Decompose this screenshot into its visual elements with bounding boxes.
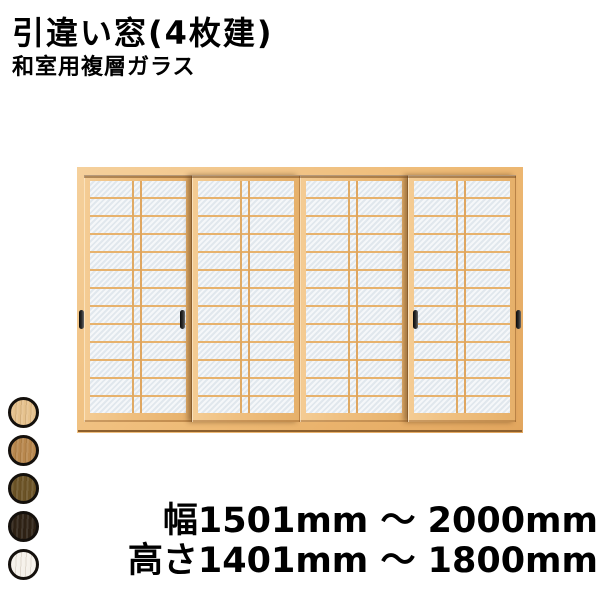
shoji-glass: [90, 181, 186, 413]
shoji-glass: [306, 181, 402, 413]
page-title: 引違い窓(4枚建): [12, 8, 274, 54]
sash-handle: [516, 310, 521, 329]
frame-top-shadow: [84, 175, 516, 178]
shoji-glass: [414, 181, 510, 413]
window-frame-track: [84, 175, 516, 422]
color-swatch-natural-light-wood: [8, 397, 39, 428]
size-range-width: 幅1501mm ～ 2000mm: [128, 501, 598, 541]
sash-handle: [413, 310, 418, 329]
window-panel: [84, 175, 192, 422]
color-swatch-medium-oak-wood: [8, 435, 39, 466]
window-preview: [77, 167, 523, 433]
sash-handle: [79, 310, 84, 329]
page-subtitle: 和室用複層ガラス: [12, 49, 196, 81]
color-swatch-dark-brown-wood: [8, 511, 39, 542]
window-panel: [192, 175, 300, 422]
window-panel: [300, 175, 408, 422]
color-swatch-dark-olive-wood: [8, 473, 39, 504]
sash-handle: [180, 310, 185, 329]
color-swatch-list: [8, 397, 39, 580]
size-range-text: 幅1501mm ～ 2000mm 高さ1401mm ～ 1800mm: [128, 501, 598, 581]
shoji-glass: [198, 181, 294, 413]
color-swatch-off-white: [8, 549, 39, 580]
frame-bottom-edge: [78, 430, 522, 432]
window-panel: [408, 175, 516, 422]
product-image-page: 引違い窓(4枚建) 和室用複層ガラス: [0, 0, 600, 600]
size-range-height: 高さ1401mm ～ 1800mm: [128, 541, 598, 581]
